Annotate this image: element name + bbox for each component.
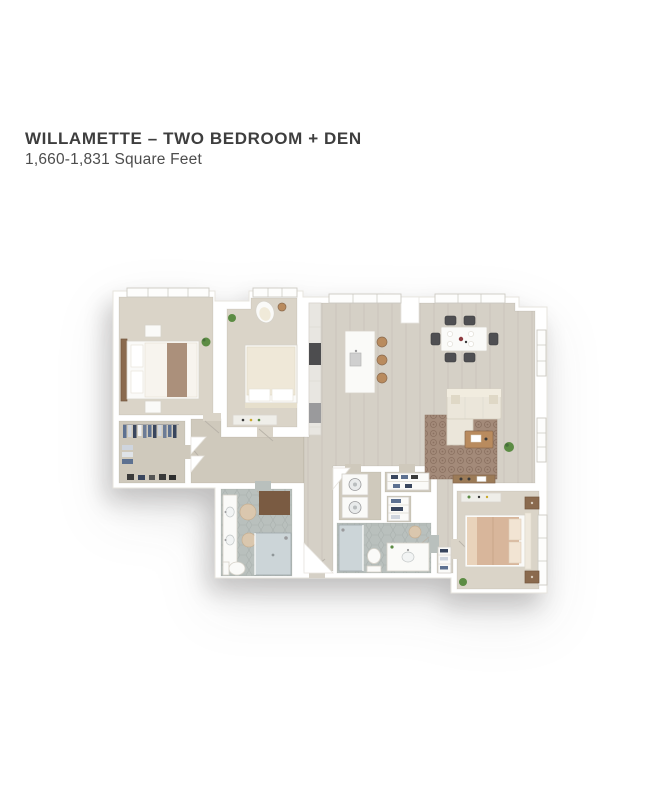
double-vanity <box>223 495 237 567</box>
media-console <box>453 475 495 483</box>
window-den-nook <box>253 288 297 297</box>
bed2-duvet <box>247 347 295 395</box>
fridge-appliance <box>309 403 321 423</box>
centerpiece <box>459 337 463 341</box>
dining-chair <box>431 333 440 345</box>
sink <box>226 507 234 517</box>
window-bedroom1 <box>127 288 209 297</box>
floorplan-svg <box>105 285 550 600</box>
bath-wood-mat <box>259 491 290 515</box>
toilet-tank <box>367 566 381 572</box>
sink <box>402 552 414 562</box>
window-living-a <box>537 330 546 376</box>
side-table <box>278 303 286 311</box>
plan-title: WILLAMETTE – TWO BEDROOM + DEN <box>25 129 362 149</box>
bath-rug <box>409 526 421 538</box>
toilet <box>229 562 245 575</box>
dining-chair <box>464 353 475 362</box>
dining-chair <box>445 316 456 325</box>
window-living-b <box>537 418 546 462</box>
bath-rug <box>240 504 256 520</box>
shower <box>339 525 363 571</box>
nightstand <box>145 325 161 337</box>
bed1-throw <box>167 343 187 397</box>
dining-chair <box>489 333 498 345</box>
bar-stool <box>377 337 387 347</box>
plant-icon <box>202 338 211 347</box>
page: WILLAMETTE – TWO BEDROOM + DEN 1,660-1,8… <box>0 0 657 791</box>
bedroom2-dresser <box>233 415 277 425</box>
master-pillow <box>509 542 521 563</box>
floorplan-image <box>105 285 550 600</box>
plant-icon <box>504 442 514 452</box>
toilet-tank <box>223 562 229 575</box>
bar-stool <box>377 355 387 365</box>
structural-pillar <box>401 297 419 323</box>
plan-subtitle: 1,660-1,831 Square Feet <box>25 150 362 169</box>
plant-icon <box>228 314 236 322</box>
dining-chair <box>445 353 456 362</box>
dining-table <box>441 327 487 351</box>
plan-header: WILLAMETTE – TWO BEDROOM + DEN 1,660-1,8… <box>25 129 362 169</box>
bed1-headboard <box>121 339 127 401</box>
toilet <box>368 549 381 564</box>
bath-rug <box>242 533 256 547</box>
island-sink <box>350 353 361 366</box>
bed2-headboard <box>245 403 297 408</box>
nightstand <box>145 401 161 413</box>
master-pillow <box>509 519 521 540</box>
master-dresser <box>461 493 501 502</box>
sink <box>226 535 234 545</box>
window-dining <box>435 294 505 303</box>
master-headboard <box>525 513 531 569</box>
window-kitchen <box>329 294 401 303</box>
range-appliance <box>309 343 321 365</box>
dining-chair <box>464 316 475 325</box>
bar-stool <box>377 373 387 383</box>
plant-icon <box>459 578 467 586</box>
